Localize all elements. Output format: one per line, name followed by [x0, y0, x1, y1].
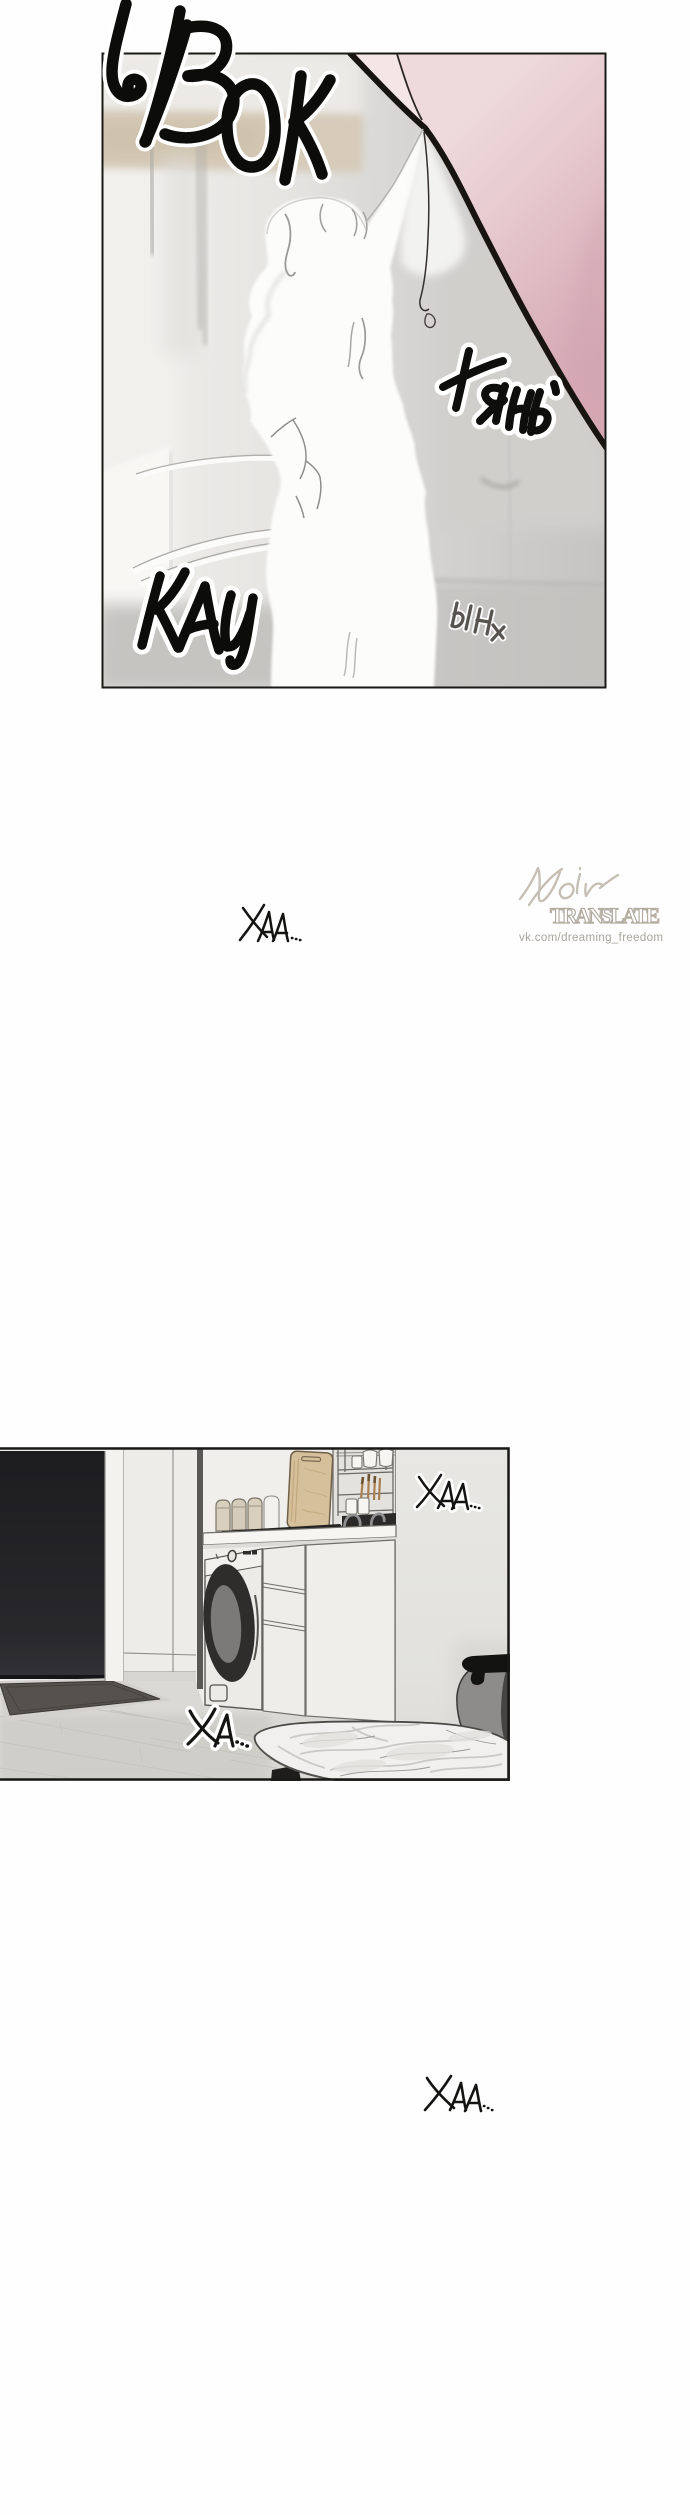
- svg-text:TRANSLATE: TRANSLATE: [550, 903, 660, 928]
- svg-text:vk.com/dreaming_freedom: vk.com/dreaming_freedom: [519, 932, 663, 944]
